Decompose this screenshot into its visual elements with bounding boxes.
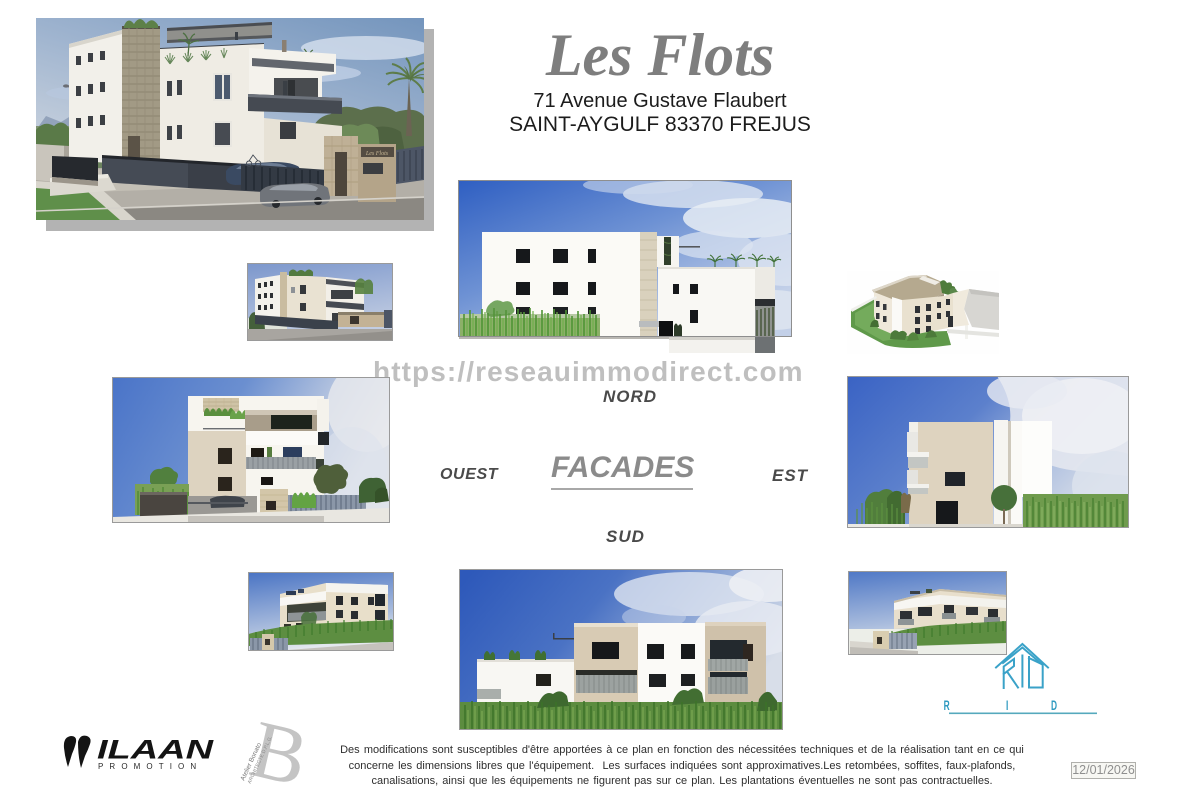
svg-text:Les Flots: Les Flots bbox=[365, 151, 389, 157]
svg-text:PROMOTION: PROMOTION bbox=[98, 762, 202, 771]
svg-text:ILAAN: ILAAN bbox=[97, 735, 214, 765]
svg-text:D: D bbox=[1051, 699, 1057, 714]
svg-text:I: I bbox=[1006, 699, 1008, 714]
svg-text:R: R bbox=[944, 699, 951, 714]
